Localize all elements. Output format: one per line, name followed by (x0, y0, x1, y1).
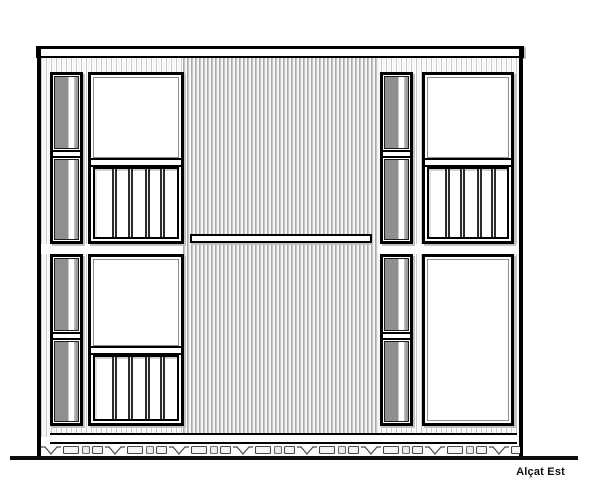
mullion (112, 169, 117, 237)
glass-pane (427, 77, 509, 158)
center-rail (190, 234, 372, 243)
floor-band-left (41, 244, 183, 254)
glazing-pane (54, 76, 79, 149)
glazing-pane (384, 341, 409, 422)
mullion (477, 169, 482, 237)
mullion (160, 169, 165, 237)
floor-band-right (378, 244, 519, 254)
window-upper-left (88, 72, 184, 244)
slatted-panel (93, 167, 179, 239)
window-lower-left (88, 254, 184, 426)
ground-line (10, 456, 578, 460)
glass-pane (93, 259, 179, 346)
window-upper-right (422, 72, 514, 244)
glass-pane (93, 77, 179, 158)
wall-right (519, 46, 523, 459)
mullion (460, 169, 465, 237)
mullion (145, 169, 150, 237)
slatted-panel (427, 167, 509, 239)
strip-window-upper-right (380, 72, 413, 244)
drawing-label: Alçat Est (516, 466, 565, 478)
glazing-pane (384, 76, 409, 149)
transom-bar (53, 332, 80, 340)
glazing-pane (384, 258, 409, 331)
mullion (128, 357, 133, 419)
mullion (145, 357, 150, 419)
strip-window-lower-left (50, 254, 83, 426)
transom-bar (91, 346, 181, 355)
window-lower-right (422, 254, 514, 426)
glass-pane (427, 259, 509, 421)
parapet-band (36, 46, 524, 58)
mullion (128, 169, 133, 237)
mullion (160, 357, 165, 419)
strip-window-upper-left (50, 72, 83, 244)
transom-bar (53, 150, 80, 158)
glazing-pane (54, 258, 79, 331)
mullion (112, 357, 117, 419)
mullion (491, 169, 496, 237)
transom-bar (383, 150, 410, 158)
glazing-pane (384, 159, 409, 240)
slatted-panel (93, 355, 179, 421)
mullion (445, 169, 450, 237)
strip-window-lower-right (380, 254, 413, 426)
cladding-center-panel (183, 58, 378, 437)
elevation-drawing-sheet: Alçat Est (0, 0, 600, 485)
glazing-pane (54, 159, 79, 240)
transom-bar (425, 158, 511, 167)
transom-bar (91, 158, 181, 167)
plinth-band (50, 433, 517, 444)
transom-bar (383, 332, 410, 340)
glazing-pane (54, 341, 79, 422)
